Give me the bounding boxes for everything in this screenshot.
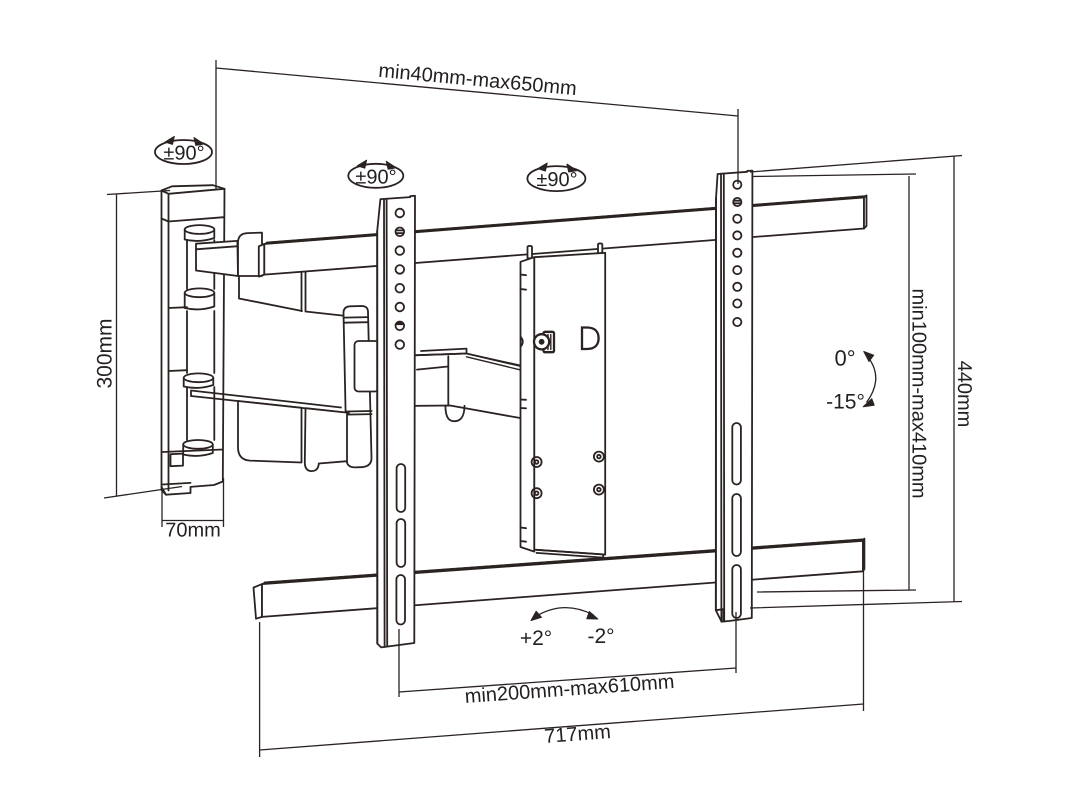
svg-text:min40mm-max650mm: min40mm-max650mm	[377, 60, 577, 100]
svg-text:717mm: 717mm	[543, 721, 611, 748]
svg-text:min100mm-max410mm: min100mm-max410mm	[908, 288, 930, 498]
svg-text:-15°: -15°	[826, 391, 865, 414]
svg-text:±90°: ±90°	[163, 143, 204, 165]
svg-text:0°: 0°	[834, 346, 855, 371]
svg-text:±90°: ±90°	[536, 169, 577, 191]
svg-text:min200mm-max610mm: min200mm-max610mm	[464, 671, 675, 708]
svg-text:±90°: ±90°	[355, 166, 396, 188]
svg-text:300mm: 300mm	[94, 318, 117, 388]
svg-text:-2°: -2°	[587, 625, 614, 648]
svg-text:70mm: 70mm	[165, 520, 221, 542]
svg-text:+2°: +2°	[520, 627, 552, 650]
svg-text:440mm: 440mm	[953, 361, 975, 428]
